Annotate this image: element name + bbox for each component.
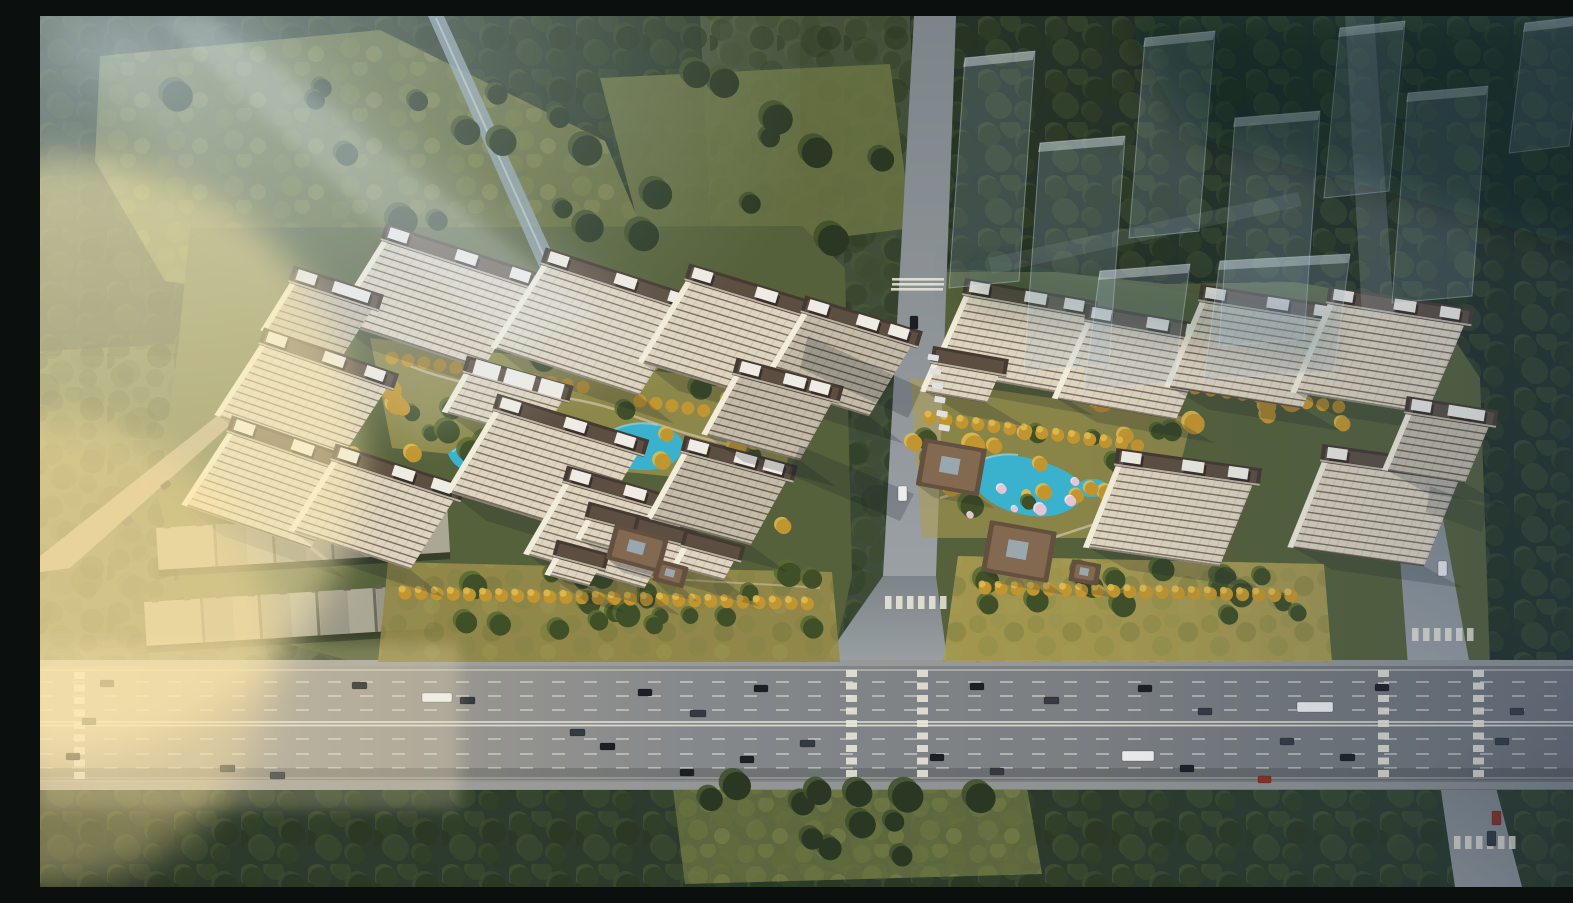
atmosphere-light bbox=[40, 16, 1573, 887]
render-canvas bbox=[40, 16, 1573, 887]
aerial-render: Aerial rendering of a twin-cluster resid… bbox=[40, 16, 1573, 887]
